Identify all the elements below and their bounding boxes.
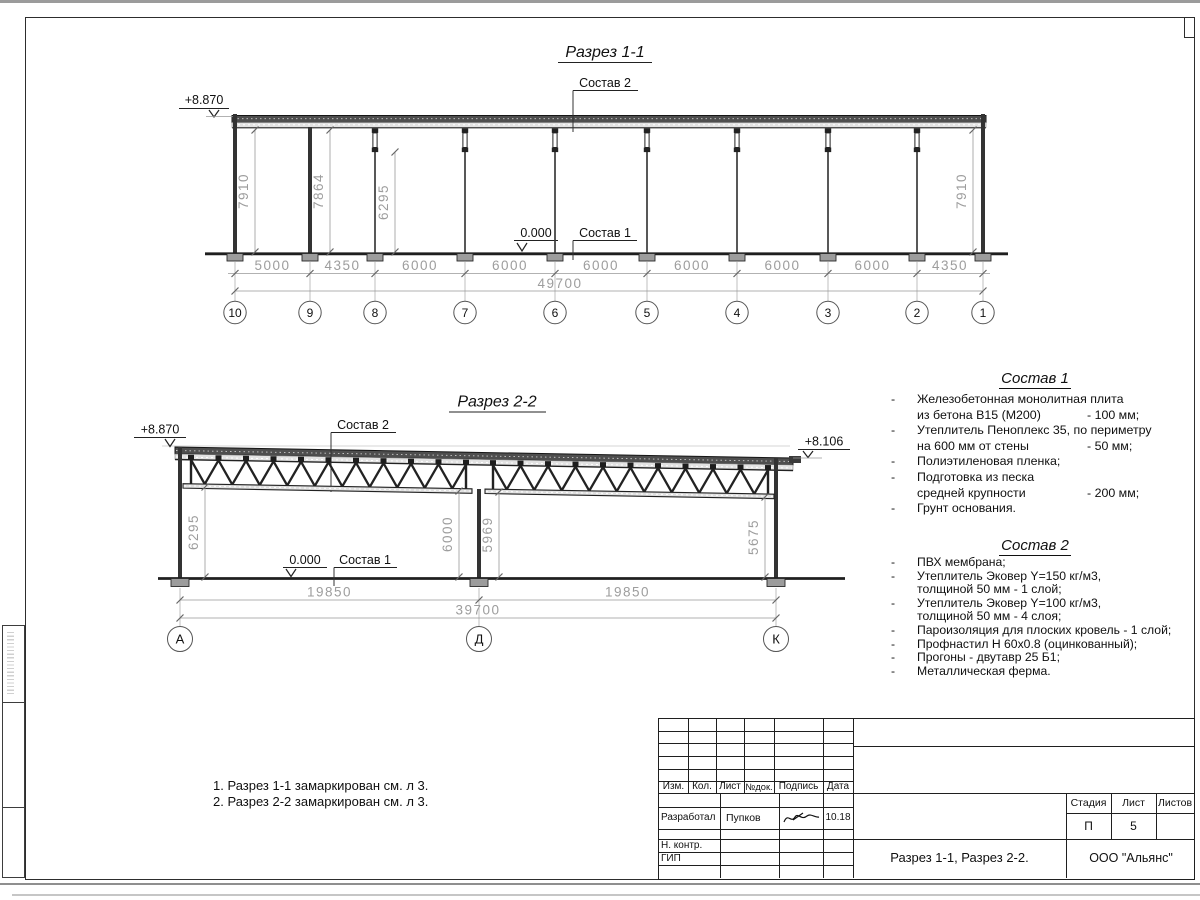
column-cap — [552, 128, 558, 133]
zero-arrow-icon — [286, 569, 296, 577]
zero-level-s1: 0.000 — [520, 226, 551, 240]
sostav1-callout-s1: Состав 1 — [579, 226, 631, 240]
column-cap — [644, 148, 650, 153]
sostav-list-item: -Пароизоляция для плоских кровель - 1 сл… — [880, 624, 1192, 638]
sostav-list-item: толщиной 50 мм - 4 слоя; — [880, 610, 1192, 624]
sostav1-heading: Состав 1 — [880, 370, 1190, 387]
list-dash: - — [880, 624, 917, 638]
foundation-pad — [367, 254, 383, 262]
tb-ncontr-label: Н. контр. — [661, 839, 719, 852]
dimension-label: 6295 — [376, 184, 391, 220]
sostav2-callout-s2: Состав 2 — [337, 418, 389, 432]
list-text: ПВХ мембрана; — [917, 555, 1006, 569]
dimension-label: 6000 — [440, 516, 455, 552]
sostav-list-item: -Утеплитель Эковер Y=150 кг/м3, — [880, 570, 1192, 584]
list-text: толщиной 50 мм - 4 слоя; — [917, 609, 1061, 623]
list-text: Пароизоляция для плоских кровель - 1 сло… — [917, 623, 1171, 637]
dimension-label: 4350 — [324, 258, 360, 273]
purlin-cleat — [545, 461, 551, 466]
list-text: средней крупности — [917, 486, 1026, 500]
elevation-arrow-icon — [165, 439, 175, 447]
tb-company: ООО "Альянс" — [1066, 839, 1196, 877]
tb-col-podpis: Подпись — [774, 781, 823, 793]
sostav-list-item: -Утеплитель Пеноплекс 35, по периметру — [880, 423, 1192, 439]
dimension-label: 7910 — [954, 173, 969, 209]
sostav-list-item: -ПВХ мембрана; — [880, 556, 1192, 570]
dimension-label: 6000 — [764, 258, 800, 273]
dimension-label: 6000 — [583, 258, 619, 273]
dimension-label: 7864 — [311, 173, 326, 209]
tb-sheet-label: Лист — [1111, 793, 1156, 813]
tb-developer-label: Разработал — [661, 807, 719, 829]
tb-col-izm: Изм. — [659, 781, 688, 793]
truss-bottom-chord — [485, 489, 774, 499]
list-dash: - — [880, 638, 917, 652]
signature-icon — [781, 809, 821, 827]
sostav-list-item: -Полиэтиленовая пленка; — [880, 454, 1192, 470]
sostav-list-item: -Утеплитель Эковер Y=100 кг/м3, — [880, 597, 1192, 611]
column-connector — [915, 133, 919, 148]
list-dash: - — [880, 501, 917, 517]
column-connector — [826, 133, 830, 148]
list-text: из бетона В15 (М200) — [917, 408, 1041, 422]
elevation-arrow-icon — [803, 451, 813, 458]
purlin-cleat — [298, 457, 304, 462]
purlin-cleat — [655, 463, 661, 468]
purlin-cleat — [216, 455, 222, 460]
list-value: - 50 мм; — [1087, 439, 1132, 455]
purlin-cleat — [408, 459, 414, 464]
list-dash: - — [880, 392, 917, 408]
column-connector — [553, 133, 557, 148]
dimension-label: 7910 — [236, 173, 251, 209]
sostav-list-item: -Железобетонная монолитная плита — [880, 392, 1192, 408]
tb-sheet-value: 5 — [1111, 813, 1156, 839]
purlin-cleat — [188, 455, 194, 460]
foundation-pad — [639, 254, 655, 262]
elevation-top-s1: +8.870 — [185, 93, 224, 107]
dimension-label: 39700 — [455, 603, 500, 618]
dimension-label: 4350 — [932, 258, 968, 273]
sheet-edge-bottom — [0, 883, 1200, 885]
grid-axis-label: 9 — [307, 306, 314, 320]
column-cap — [914, 148, 920, 153]
column-cap — [734, 148, 740, 153]
purlin-cleat — [600, 462, 606, 467]
sostav-list-item: толщиной 50 мм - 1 слой; — [880, 583, 1192, 597]
grid-axis-label: К — [772, 632, 780, 647]
purlin-cleat — [326, 457, 332, 462]
sostav-list-item: из бетона В15 (М200)- 100 мм; — [880, 408, 1192, 424]
purlin-cleat — [573, 462, 579, 467]
column-cap — [825, 148, 831, 153]
truss-bottom-chord — [183, 484, 472, 494]
list-dash: - — [880, 570, 917, 584]
foundation-pad — [729, 254, 745, 262]
tb-stage-label: Стадия — [1066, 793, 1111, 813]
column-connector — [735, 133, 739, 148]
column-cap — [825, 128, 831, 133]
tb-col-list: Лист — [716, 781, 744, 793]
purlin-cleat — [490, 460, 496, 465]
sostav2-heading: Состав 2 — [880, 537, 1190, 554]
column-cap — [462, 148, 468, 153]
purlin-cleat — [463, 460, 469, 465]
list-value: - 100 мм; — [1087, 408, 1139, 424]
grid-axis-label: 4 — [734, 306, 741, 320]
section1-title: Разрез 1-1 — [565, 44, 644, 61]
column-cap — [462, 128, 468, 133]
list-dash: - — [880, 470, 917, 486]
dimension-label: 6295 — [186, 514, 201, 550]
list-text: Утеплитель Пеноплекс 35, по периметру — [917, 423, 1152, 437]
tb-col-kol: Кол. — [688, 781, 716, 793]
elevation-top-s2: +8.870 — [141, 423, 180, 437]
tb-developer-name: Пупков — [726, 807, 778, 829]
dimension-label: 5000 — [254, 258, 290, 273]
list-text: Полиэтиленовая пленка; — [917, 454, 1060, 468]
column-cap — [644, 128, 650, 133]
list-dash: - — [880, 597, 917, 611]
list-text: Прогоны - двутавр 25 Б1; — [917, 650, 1060, 664]
purlin-cleat — [436, 459, 442, 464]
dimension-label: 19850 — [307, 585, 352, 600]
dimension-label: 5969 — [480, 516, 495, 552]
dimension-label: 19850 — [605, 585, 650, 600]
list-text: Профнастил Н 60х0.8 (оцинкованный); — [917, 637, 1137, 651]
tb-gip-label: ГИП — [661, 852, 719, 865]
sostav1-list: -Железобетонная монолитная плитаиз бетон… — [880, 392, 1192, 517]
column-connector — [373, 133, 377, 148]
foundation-pad — [820, 254, 836, 262]
zero-level-s2: 0.000 — [289, 553, 320, 567]
list-dash: - — [880, 423, 917, 439]
foundation-pad — [767, 579, 785, 587]
sostav-list-item: -Прогоны - двутавр 25 Б1; — [880, 651, 1192, 665]
list-dash: - — [880, 454, 917, 470]
title-block: Изм. Кол. Лист №док. Подпись Дата Разраб… — [658, 718, 1195, 880]
list-dash: - — [880, 665, 917, 679]
column-cap — [734, 128, 740, 133]
column-connector — [463, 133, 467, 148]
list-text: Утеплитель Эковер Y=100 кг/м3, — [917, 596, 1101, 610]
list-dash: - — [880, 556, 917, 570]
sheet-edge-bottom2 — [12, 894, 1200, 896]
sostav-list-item: -Подготовка из песка — [880, 470, 1192, 486]
grid-axis-label: 6 — [552, 306, 559, 320]
column-cap — [372, 148, 378, 153]
list-value: - 200 мм; — [1087, 486, 1139, 502]
column-cap — [552, 148, 558, 153]
list-text: Подготовка из песка — [917, 470, 1034, 484]
purlin-cleat — [683, 464, 689, 469]
grid-axis-label: А — [176, 632, 185, 647]
purlin-cleat — [518, 461, 524, 466]
dimension-label: 6000 — [854, 258, 890, 273]
grid-axis-label: 10 — [228, 306, 242, 320]
dimension-label: 6000 — [674, 258, 710, 273]
list-text: Грунт основания. — [917, 501, 1016, 515]
note-line: 2. Разрез 2-2 замаркирован см. л 3. — [213, 794, 428, 810]
sostav-list-item: на 600 мм от стены- 50 мм; — [880, 439, 1192, 455]
notes: 1. Разрез 1-1 замаркирован см. л 3. 2. Р… — [213, 778, 428, 809]
dimension-label: 49700 — [537, 276, 582, 291]
purlin-cleat — [243, 456, 249, 461]
sostav-list-item: -Металлическая ферма. — [880, 665, 1192, 679]
sostav-list-item: -Грунт основания. — [880, 501, 1192, 517]
purlin-cleat — [628, 463, 634, 468]
list-text: Железобетонная монолитная плита — [917, 392, 1124, 406]
elevation-right-s2: +8.106 — [805, 435, 844, 449]
tb-developer-date: 10.18 — [823, 807, 853, 829]
grid-axis-label: 2 — [914, 306, 921, 320]
roof-end-block — [789, 456, 801, 463]
section2-title: Разрез 2-2 — [457, 394, 536, 411]
tb-stage-value: П — [1066, 813, 1111, 839]
foundation-pad — [909, 254, 925, 262]
sostav2-callout-s1: Состав 2 — [579, 76, 631, 90]
purlin-cleat — [353, 458, 359, 463]
tb-col-ndok: №док. — [744, 781, 774, 793]
list-text: Металлическая ферма. — [917, 664, 1051, 678]
grid-axis-label: 5 — [644, 306, 651, 320]
tb-doc-title: Разрез 1-1, Разрез 2-2. — [853, 839, 1066, 877]
list-text: толщиной 50 мм - 1 слой; — [917, 582, 1062, 596]
purlin-cleat — [271, 456, 277, 461]
foundation-pad — [975, 254, 991, 262]
foundation-pad — [470, 579, 488, 587]
tb-col-data: Дата — [823, 781, 853, 793]
list-dash: - — [880, 651, 917, 665]
drawing-sheet: Разрез 1-1 +8.870 Состав 2 Состав 1 0.00… — [0, 0, 1200, 900]
foundation-pad — [171, 579, 189, 587]
sostav-list-item: средней крупности- 200 мм; — [880, 486, 1192, 502]
note-line: 1. Разрез 1-1 замаркирован см. л 3. — [213, 778, 428, 794]
sostav2-list: -ПВХ мембрана;-Утеплитель Эковер Y=150 к… — [880, 556, 1192, 678]
sostav-list-item: -Профнастил Н 60х0.8 (оцинкованный); — [880, 638, 1192, 652]
foundation-pad — [302, 254, 318, 262]
grid-axis-label: Д — [475, 632, 484, 647]
foundation-pad — [547, 254, 563, 262]
purlin-cleat — [381, 458, 387, 463]
sostav1-callout-s2: Состав 1 — [339, 553, 391, 567]
dimension-label: 6000 — [402, 258, 438, 273]
list-text: на 600 мм от стены — [917, 439, 1029, 453]
grid-axis-label: 7 — [462, 306, 469, 320]
grid-axis-label: 3 — [825, 306, 832, 320]
purlin-cleat — [738, 465, 744, 470]
list-text: Утеплитель Эковер Y=150 кг/м3, — [917, 569, 1101, 583]
tb-sheets-label: Листов — [1156, 793, 1194, 813]
column-connector — [645, 133, 649, 148]
column-cap — [372, 128, 378, 133]
grid-axis-label: 8 — [372, 306, 379, 320]
column-cap — [914, 128, 920, 133]
elevation-arrow-icon — [209, 110, 219, 117]
foundation-pad — [457, 254, 473, 262]
purlin-cleat — [765, 465, 771, 470]
zero-arrow-icon — [517, 243, 527, 251]
grid-axis-label: 1 — [980, 306, 987, 320]
dimension-label: 6000 — [492, 258, 528, 273]
dimension-label: 5675 — [746, 519, 761, 555]
purlin-cleat — [710, 464, 716, 469]
foundation-pad — [227, 254, 243, 262]
